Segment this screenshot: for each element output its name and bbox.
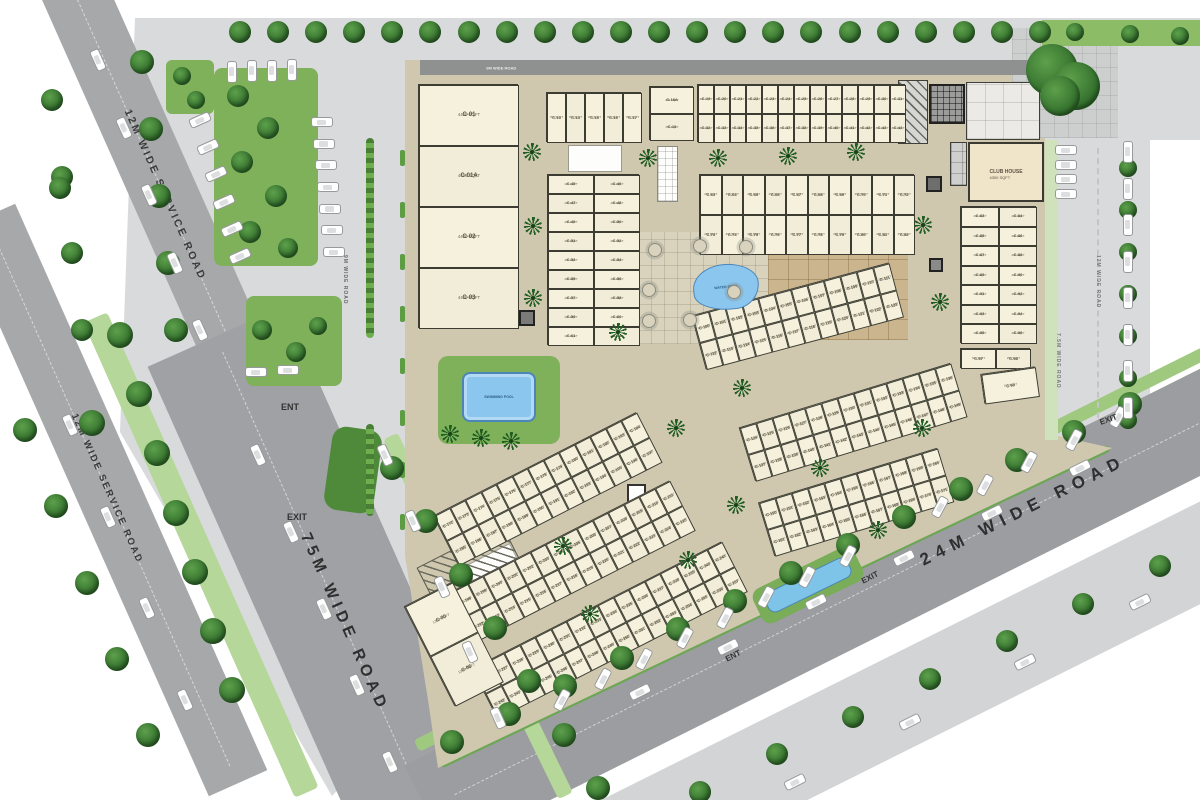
- block-central-unit: C-66450 SQFT: [765, 175, 787, 215]
- club-house: CLUB HOUSE4300 SQFT: [968, 142, 1044, 202]
- block-central-unit: C-77450 SQFT: [786, 215, 808, 255]
- block-right-small-unit: C-97300 SQFT: [961, 349, 996, 369]
- block-right-unit: C-84400 SQFT: [999, 207, 1037, 227]
- tree: [686, 21, 708, 43]
- tree: [1149, 555, 1171, 577]
- block-right-unit: C-91400 SQFT: [961, 285, 999, 305]
- block-mid-left-unit: C-54400 SQFT: [594, 251, 640, 270]
- block-central-unit: C-72450 SQFT: [894, 175, 916, 215]
- tree: [79, 410, 105, 436]
- car: [245, 367, 267, 377]
- block-top-long-unit: C-36300 SQFT: [762, 114, 778, 143]
- car: [277, 365, 299, 375]
- block-central-unit: C-80450 SQFT: [851, 215, 873, 255]
- palm-tree: [502, 432, 520, 450]
- block-mid-left-unit: C-53400 SQFT: [548, 251, 594, 270]
- palm-tree: [524, 289, 542, 307]
- tree: [219, 677, 245, 703]
- edge-hedge-4: [400, 358, 405, 374]
- car: [313, 139, 335, 149]
- block-top-shops-unit: C-15350 SQFT: [585, 93, 604, 143]
- car: [1123, 360, 1133, 382]
- palm-tree: [441, 425, 459, 443]
- block-central-unit: C-64450 SQFT: [722, 175, 744, 215]
- block-mid-left-unit: C-55400 SQFT: [548, 270, 594, 289]
- palm-tree: [524, 217, 542, 235]
- tree: [458, 21, 480, 43]
- block-top-long-unit: C-27300 SQFT: [826, 85, 842, 114]
- block-central: C-63450 SQFTC-64450 SQFTC-65450 SQFTC-66…: [699, 174, 914, 254]
- palm-tree: [554, 537, 572, 555]
- block-top-long-unit: C-42300 SQFT: [858, 114, 874, 143]
- tree: [610, 21, 632, 43]
- block-top-long-unit: C-20300 SQFT: [714, 85, 730, 114]
- block-top-long-unit: C-33300 SQFT: [714, 114, 730, 143]
- block-top-long-unit: C-21300 SQFT: [730, 85, 746, 114]
- unit-c99: C-99550 SQFT: [980, 366, 1039, 403]
- car: [1123, 178, 1133, 200]
- block-top-long-unit: C-22300 SQFT: [746, 85, 762, 114]
- block-left-large: C-014400 SQFTC-01A4400 SQFTC-024400 SQFT…: [418, 84, 518, 328]
- block-mid-left-unit: C-52400 SQFT: [594, 232, 640, 251]
- block-top-long-unit: C-29300 SQFT: [858, 85, 874, 114]
- block-top-long-unit: C-25300 SQFT: [794, 85, 810, 114]
- block-top-long-unit: C-28300 SQFT: [842, 85, 858, 114]
- hedge-line-1: [366, 138, 374, 338]
- tree: [130, 50, 154, 74]
- canopy-a: [568, 145, 622, 172]
- club-house-label: CLUB HOUSE4300 SQFT: [989, 169, 1022, 175]
- palm-tree: [733, 379, 751, 397]
- palm-tree: [709, 149, 727, 167]
- palm-tree: [639, 149, 657, 167]
- tree: [229, 21, 251, 43]
- block-central-unit: C-65450 SQFT: [743, 175, 765, 215]
- car: [1055, 189, 1077, 199]
- block-top-long-unit: C-41300 SQFT: [842, 114, 858, 143]
- tree: [278, 238, 298, 258]
- car: [1123, 397, 1133, 419]
- cafe-table-6: [642, 314, 656, 328]
- palm-tree: [847, 143, 865, 161]
- lift-2: [929, 258, 943, 272]
- block-top-long-unit: C-32300 SQFT: [698, 114, 714, 143]
- block-right-unit: C-94400 SQFT: [999, 305, 1037, 325]
- tree: [136, 723, 160, 747]
- tree: [257, 117, 279, 139]
- lift-1: [926, 176, 942, 192]
- tree: [267, 21, 289, 43]
- block-mid-left-unit: C-46400 SQFT: [594, 175, 640, 194]
- block-top-long-unit: C-37300 SQFT: [778, 114, 794, 143]
- car: [267, 60, 277, 82]
- block-right-unit: C-95400 SQFT: [961, 324, 999, 344]
- walk-right-strip: [1045, 140, 1058, 440]
- car: [247, 60, 257, 82]
- cafe-table-5: [683, 313, 697, 327]
- tree: [610, 646, 634, 670]
- tree: [1040, 76, 1080, 116]
- block-right-unit: C-87400 SQFT: [961, 246, 999, 266]
- palm-tree: [727, 496, 745, 514]
- block-right-unit: C-93400 SQFT: [961, 305, 999, 325]
- block-mid-left-unit: C-57400 SQFT: [548, 289, 594, 308]
- tree: [126, 381, 152, 407]
- tree: [200, 618, 226, 644]
- block-top-long-unit: C-30300 SQFT: [874, 85, 890, 114]
- block-top-long-unit: C-23300 SQFT: [762, 85, 778, 114]
- block-right-unit: C-92400 SQFT: [999, 285, 1037, 305]
- car: [315, 160, 337, 170]
- block-central-unit: C-79450 SQFT: [829, 215, 851, 255]
- block-top-long-unit: C-24300 SQFT: [778, 85, 794, 114]
- block-top-long-unit: C-19300 SQFT: [698, 85, 714, 114]
- car: [287, 59, 297, 81]
- hedge-line-2: [366, 424, 374, 516]
- palm-tree: [913, 419, 931, 437]
- ramp-road-band-label: 9M WIDE ROAD: [486, 65, 516, 70]
- palm-tree: [609, 323, 627, 341]
- label-12m-wide-road-6: 12M WIDE ROAD: [1095, 255, 1101, 308]
- car: [1055, 174, 1077, 184]
- block-top-long-unit: C-31300 SQFT: [890, 85, 906, 114]
- tree: [991, 21, 1013, 43]
- block-central-unit: C-81450 SQFT: [872, 215, 894, 255]
- palm-tree: [523, 143, 541, 161]
- palm-tree: [869, 521, 887, 539]
- block-top-long-unit: C-44300 SQFT: [890, 114, 906, 143]
- palm-tree: [914, 216, 932, 234]
- tree: [1066, 23, 1084, 41]
- ramp-road-band: 9M WIDE ROAD: [420, 60, 1045, 75]
- car: [1123, 214, 1133, 236]
- cafe-table-3: [642, 283, 656, 297]
- tree: [252, 320, 272, 340]
- block-right-small-unit: C-98250 SQFT: [996, 349, 1031, 369]
- block-mid-left-unit: C-45400 SQFT: [548, 175, 594, 194]
- block-left-large-unit: C-024400 SQFT: [419, 207, 519, 268]
- block-mid-left-unit: C-61400 SQFT: [548, 327, 594, 346]
- block-central-unit: C-82450 SQFT: [894, 215, 916, 255]
- tree: [949, 477, 973, 501]
- service-rooms: [966, 82, 1040, 140]
- block-top-shops-unit: C-14350 SQFT: [566, 93, 585, 143]
- tree: [449, 563, 473, 587]
- tree: [1171, 27, 1189, 45]
- tree: [1121, 25, 1139, 43]
- block-top-long-unit: C-40300 SQFT: [826, 114, 842, 143]
- car: [319, 204, 341, 214]
- block-top-long: C-19300 SQFTC-20300 SQFTC-21300 SQFTC-22…: [697, 84, 905, 142]
- palm-tree: [779, 147, 797, 165]
- palm-tree: [581, 605, 599, 623]
- block-top-pair-unit: C-18A200 SQFT: [650, 87, 694, 114]
- block-central-unit: C-76450 SQFT: [765, 215, 787, 255]
- block-right-unit: C-88400 SQFT: [999, 246, 1037, 266]
- car: [317, 182, 339, 192]
- tree: [496, 21, 518, 43]
- block-left-large-unit: C-014400 SQFT: [419, 85, 519, 146]
- tree: [187, 91, 205, 109]
- block-top-long-unit: C-26300 SQFT: [810, 85, 826, 114]
- edge-hedge-0: [400, 150, 405, 166]
- car: [1123, 324, 1133, 346]
- cafe-table-4: [727, 285, 741, 299]
- tree: [163, 500, 189, 526]
- block-top-shops: C-13350 SQFTC-14350 SQFTC-15350 SQFTC-16…: [546, 92, 641, 142]
- tree: [44, 494, 68, 518]
- tree: [534, 21, 556, 43]
- tree: [1072, 593, 1094, 615]
- block-right-unit: C-90400 SQFT: [999, 266, 1037, 286]
- tree: [309, 317, 327, 335]
- block-top-shops-unit: C-16350 SQFT: [604, 93, 623, 143]
- tree: [13, 418, 37, 442]
- tree: [231, 151, 253, 173]
- tree: [105, 647, 129, 671]
- tree: [996, 630, 1018, 652]
- palm-tree: [667, 419, 685, 437]
- tree: [483, 616, 507, 640]
- tree: [265, 185, 287, 207]
- tree: [49, 177, 71, 199]
- tree: [877, 21, 899, 43]
- block-right-unit: C-83400 SQFT: [961, 207, 999, 227]
- tree: [919, 668, 941, 690]
- tree: [41, 89, 63, 111]
- block-left-large-unit: C-01A4400 SQFT: [419, 146, 519, 207]
- label-exit-1: EXIT: [287, 512, 307, 522]
- cafe-table-0: [648, 243, 662, 257]
- edge-hedge-2: [400, 254, 405, 270]
- edge-hedge-7: [400, 514, 405, 530]
- block-mid-left-unit: C-59400 SQFT: [548, 308, 594, 327]
- tree: [71, 319, 93, 341]
- block-central-unit: C-69450 SQFT: [829, 175, 851, 215]
- block-top-pair: C-18A200 SQFTC-18350 SQFT: [649, 86, 693, 140]
- block-mid-left-unit: C-58400 SQFT: [594, 289, 640, 308]
- edge-hedge-3: [400, 306, 405, 322]
- palm-tree: [472, 429, 490, 447]
- cafe-table-1: [693, 239, 707, 253]
- car: [1123, 251, 1133, 273]
- block-top-long-unit: C-43300 SQFT: [874, 114, 890, 143]
- tree: [173, 67, 191, 85]
- tree: [227, 85, 249, 107]
- label-9m-wide-road-5: 9M WIDE ROAD: [342, 255, 348, 305]
- palm-tree: [679, 551, 697, 569]
- tree: [766, 743, 788, 765]
- tree: [182, 559, 208, 585]
- block-right-unit: C-89400 SQFT: [961, 266, 999, 286]
- block-top-long-unit: C-34300 SQFT: [730, 114, 746, 143]
- block-mid-left-unit: C-48400 SQFT: [594, 194, 640, 213]
- block-mid-left: C-45400 SQFTC-46400 SQFTC-47400 SQFTC-48…: [547, 174, 639, 345]
- edge-hedge-5: [400, 410, 405, 426]
- block-central-unit: C-78450 SQFT: [808, 215, 830, 255]
- car: [311, 117, 333, 127]
- block-central-unit: C-70450 SQFT: [851, 175, 873, 215]
- block-mid-left-unit: C-50400 SQFT: [594, 213, 640, 232]
- block-top-long-unit: C-38300 SQFT: [794, 114, 810, 143]
- car: [227, 61, 237, 83]
- block-central-unit: C-71450 SQFT: [872, 175, 894, 215]
- electrical-block: [929, 84, 965, 124]
- tree: [648, 21, 670, 43]
- toilet-rooms: [950, 142, 967, 186]
- tree: [689, 781, 711, 800]
- tree: [286, 342, 306, 362]
- block-central-unit: C-63450 SQFT: [700, 175, 722, 215]
- car: [321, 225, 343, 235]
- edge-hedge-1: [400, 202, 405, 218]
- block-top-pair-unit: C-18350 SQFT: [650, 114, 694, 141]
- tree: [139, 117, 163, 141]
- tree: [164, 318, 188, 342]
- tree: [552, 723, 576, 747]
- tree: [839, 21, 861, 43]
- tree: [953, 21, 975, 43]
- block-right-small: C-97300 SQFTC-98250 SQFT: [960, 348, 1030, 368]
- travelator: [657, 146, 678, 202]
- block-central-unit: C-68450 SQFT: [808, 175, 830, 215]
- block-mid-left-unit: C-56400 SQFT: [594, 270, 640, 289]
- block-right-unit: C-85400 SQFT: [961, 227, 999, 247]
- tree: [107, 322, 133, 348]
- tree: [572, 21, 594, 43]
- block-left-large-unit: C-034400 SQFT: [419, 268, 519, 329]
- cafe-table-2: [739, 240, 753, 254]
- car: [1123, 141, 1133, 163]
- block-mid-left-unit: C-51400 SQFT: [548, 232, 594, 251]
- label-7-5m-wide-road-7: 7.5M WIDE ROAD: [1055, 333, 1061, 389]
- block-right-unit: C-86400 SQFT: [999, 227, 1037, 247]
- block-mid-left-unit: C-49400 SQFT: [548, 213, 594, 232]
- road-75m-label-0: 75M WIDE ROAD: [296, 530, 391, 714]
- tree: [915, 21, 937, 43]
- block-top-shops-unit: C-13350 SQFT: [547, 93, 566, 143]
- tree: [842, 706, 864, 728]
- tree: [586, 776, 610, 800]
- tree: [1029, 21, 1051, 43]
- block-right: C-83400 SQFTC-84400 SQFTC-85400 SQFTC-86…: [960, 206, 1036, 343]
- tree: [892, 505, 916, 529]
- tree: [440, 730, 464, 754]
- car: [1055, 145, 1077, 155]
- atm-kiosk: [519, 310, 535, 326]
- tree: [75, 571, 99, 595]
- car: [1055, 160, 1077, 170]
- swimming-pool: SWIMMING POOL: [462, 372, 536, 422]
- label-ent-0: ENT: [281, 402, 299, 412]
- block-top-shops-unit: C-17350 SQFT: [623, 93, 642, 143]
- block-top-long-unit: C-39300 SQFT: [810, 114, 826, 143]
- block-central-unit: C-67450 SQFT: [786, 175, 808, 215]
- block-top-long-unit: C-35300 SQFT: [746, 114, 762, 143]
- palm-tree: [931, 293, 949, 311]
- block-mid-left-unit: C-47400 SQFT: [548, 194, 594, 213]
- palm-tree: [811, 459, 829, 477]
- car: [1123, 287, 1133, 309]
- block-right-unit: C-96400 SQFT: [999, 324, 1037, 344]
- site-plan: 12M WIDE SERVICE ROAD12M WIDE SERVICE RO…: [0, 0, 1200, 800]
- tree: [61, 242, 83, 264]
